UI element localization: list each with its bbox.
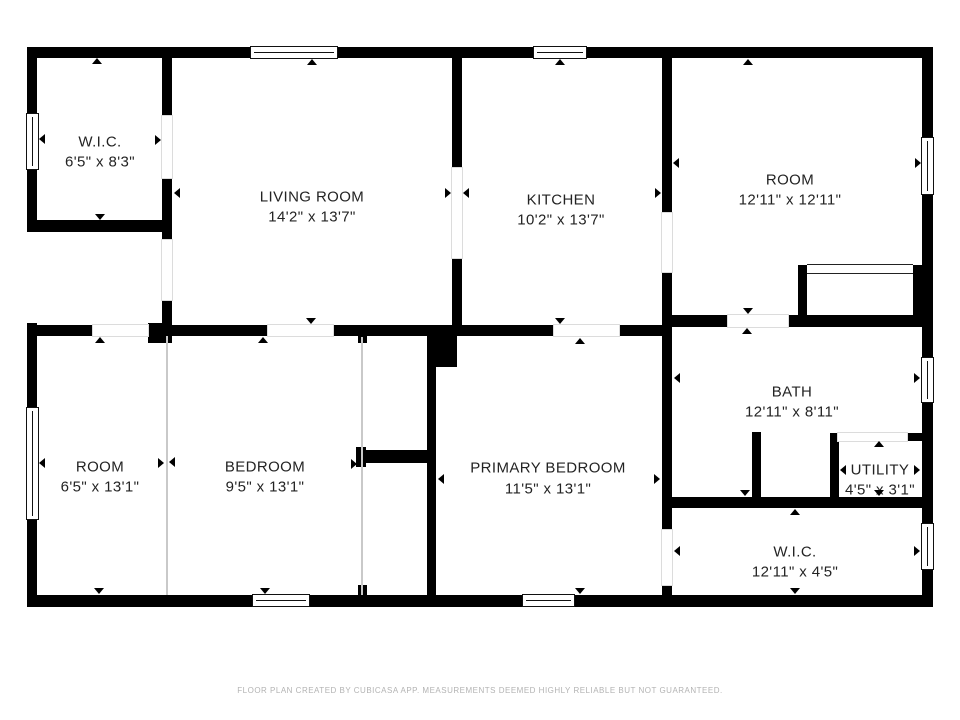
- wall-segment: [587, 47, 933, 58]
- room-name-wic-top-left: W.I.C.: [78, 134, 121, 151]
- dimension-arrow-down: [790, 588, 800, 594]
- dimension-arrow-down: [94, 588, 104, 594]
- window: [921, 357, 934, 403]
- dimension-arrow-up: [95, 337, 105, 343]
- wall-segment: [662, 272, 672, 530]
- room-name-bedroom: BEDROOM: [225, 459, 305, 476]
- dimension-arrow-down: [260, 588, 270, 594]
- door-opening: [554, 325, 619, 336]
- wall-segment: [172, 325, 268, 336]
- wall-segment: [907, 433, 922, 441]
- dimension-arrow-right: [155, 135, 161, 145]
- door-opening: [93, 325, 148, 336]
- wall-segment: [333, 325, 427, 336]
- wall-segment: [27, 325, 93, 336]
- door-opening: [162, 116, 172, 178]
- door-opening: [838, 433, 907, 441]
- room-dims-bedroom: 9'5" x 13'1": [226, 479, 305, 496]
- room-name-wic-bottom-right: W.I.C.: [773, 544, 816, 561]
- open-boundary: [166, 336, 168, 595]
- room-dims-wic-top-left: 6'5" x 8'3": [65, 154, 135, 171]
- room-dims-primary-bedroom: 11'5" x 13'1": [505, 481, 591, 498]
- dimension-arrow-up: [743, 59, 753, 65]
- room-name-utility: UTILITY: [851, 462, 910, 479]
- wall-segment: [798, 265, 807, 320]
- wall-segment: [922, 403, 933, 523]
- dimension-arrow-up: [92, 58, 102, 64]
- wall-segment: [427, 367, 436, 597]
- dimension-arrow-up: [307, 59, 317, 65]
- window-sash-line: [526, 600, 571, 601]
- dimension-arrow-down: [874, 490, 884, 496]
- wall-segment: [788, 315, 933, 327]
- wall-segment: [575, 595, 933, 607]
- open-boundary: [361, 337, 363, 595]
- dimension-arrow-down: [740, 490, 750, 496]
- footer-disclaimer: FLOOR PLAN CREATED BY CUBICASA APP. MEAS…: [0, 686, 960, 695]
- window: [26, 407, 39, 520]
- wall-segment: [830, 433, 839, 497]
- dimension-arrow-left: [674, 373, 680, 383]
- window: [26, 113, 39, 170]
- wall-segment: [27, 47, 37, 113]
- window: [921, 137, 934, 195]
- dimension-arrow-up: [742, 328, 752, 334]
- dimension-arrow-up: [575, 338, 585, 344]
- wall-segment: [27, 595, 252, 607]
- wall-segment: [162, 58, 172, 116]
- dimension-arrow-right: [915, 158, 921, 168]
- dimension-arrow-right: [654, 474, 660, 484]
- dimension-arrow-down: [575, 588, 585, 594]
- dimension-arrow-left: [463, 188, 469, 198]
- wall-segment: [452, 258, 462, 325]
- room-dims-room-bottom-left: 6'5" x 13'1": [61, 479, 140, 496]
- window-sash-line: [927, 141, 928, 191]
- door-opening: [268, 325, 333, 336]
- dimension-arrow-down: [306, 318, 316, 324]
- dimension-arrow-right: [158, 458, 164, 468]
- window-sash-line: [32, 411, 33, 516]
- window-sash-line: [537, 52, 583, 53]
- window: [250, 46, 338, 59]
- wall-segment: [338, 47, 533, 58]
- room-name-kitchen: KITCHEN: [527, 192, 596, 209]
- wall-segment: [922, 47, 933, 137]
- floor-plan: W.I.C.6'5" x 8'3"LIVING ROOM14'2" x 13'7…: [0, 0, 960, 720]
- room-dims-wic-bottom-right: 12'11" x 4'5": [752, 564, 838, 581]
- dimension-arrow-left: [674, 546, 680, 556]
- wall-segment: [162, 178, 172, 240]
- door-opening: [162, 240, 172, 300]
- wall-segment: [360, 450, 430, 463]
- room-dims-living-room: 14'2" x 13'7": [268, 209, 355, 226]
- room-dims-room-top-right: 12'11" x 12'11": [739, 192, 842, 209]
- wall-segment: [427, 325, 457, 367]
- dimension-arrow-up: [258, 337, 268, 343]
- dimension-arrow-left: [840, 465, 846, 475]
- room-name-bath: BATH: [772, 384, 813, 401]
- dimension-arrow-left: [673, 158, 679, 168]
- wall-segment: [27, 220, 172, 232]
- room-name-primary-bedroom: PRIMARY BEDROOM: [470, 460, 625, 477]
- dimension-arrow-down: [743, 308, 753, 314]
- wall-segment: [452, 58, 462, 168]
- window-sash-line: [254, 52, 334, 53]
- wall-segment: [457, 325, 554, 336]
- wall-segment: [27, 520, 37, 607]
- dimension-arrow-up: [555, 59, 565, 65]
- dimension-arrow-right: [914, 465, 920, 475]
- window-sash-line: [32, 117, 33, 166]
- wall-segment: [662, 585, 672, 607]
- dimension-arrow-left: [39, 134, 45, 144]
- wall-segment: [672, 315, 728, 327]
- dimension-arrow-left: [174, 188, 180, 198]
- room-dims-kitchen: 10'2" x 13'7": [517, 212, 604, 229]
- wall-segment: [662, 58, 672, 213]
- wall-segment: [310, 595, 522, 607]
- wall-segment: [752, 432, 761, 498]
- dimension-arrow-right: [351, 459, 357, 469]
- dimension-arrow-left: [438, 474, 444, 484]
- dimension-arrow-down: [95, 214, 105, 220]
- door-opening: [728, 315, 788, 327]
- window: [252, 594, 310, 607]
- dimension-arrow-up: [874, 441, 884, 447]
- dimension-arrow-left: [169, 457, 175, 467]
- room-name-room-top-right: ROOM: [766, 172, 814, 189]
- door-opening: [452, 168, 462, 258]
- dimension-arrow-right: [655, 188, 661, 198]
- window: [522, 594, 575, 607]
- door-opening: [662, 213, 672, 272]
- dimension-arrow-right: [445, 188, 451, 198]
- window-sash-line: [256, 600, 306, 601]
- wall-segment: [662, 497, 922, 508]
- window-sash-line: [927, 361, 928, 399]
- room-name-living-room: LIVING ROOM: [260, 189, 364, 206]
- window-sash-line: [927, 527, 928, 566]
- dimension-arrow-right: [914, 373, 920, 383]
- dimension-arrow-up: [790, 509, 800, 515]
- window: [533, 46, 587, 59]
- dimension-arrow-right: [914, 546, 920, 556]
- closet-slider: [807, 264, 913, 274]
- wall-segment: [913, 265, 925, 320]
- window: [921, 523, 934, 570]
- room-name-room-bottom-left: ROOM: [76, 459, 124, 476]
- room-dims-bath: 12'11" x 8'11": [745, 404, 839, 421]
- door-opening: [662, 530, 672, 585]
- dimension-arrow-down: [555, 318, 565, 324]
- wall-segment: [27, 47, 250, 58]
- dimension-arrow-left: [39, 458, 45, 468]
- wall-segment: [148, 323, 172, 343]
